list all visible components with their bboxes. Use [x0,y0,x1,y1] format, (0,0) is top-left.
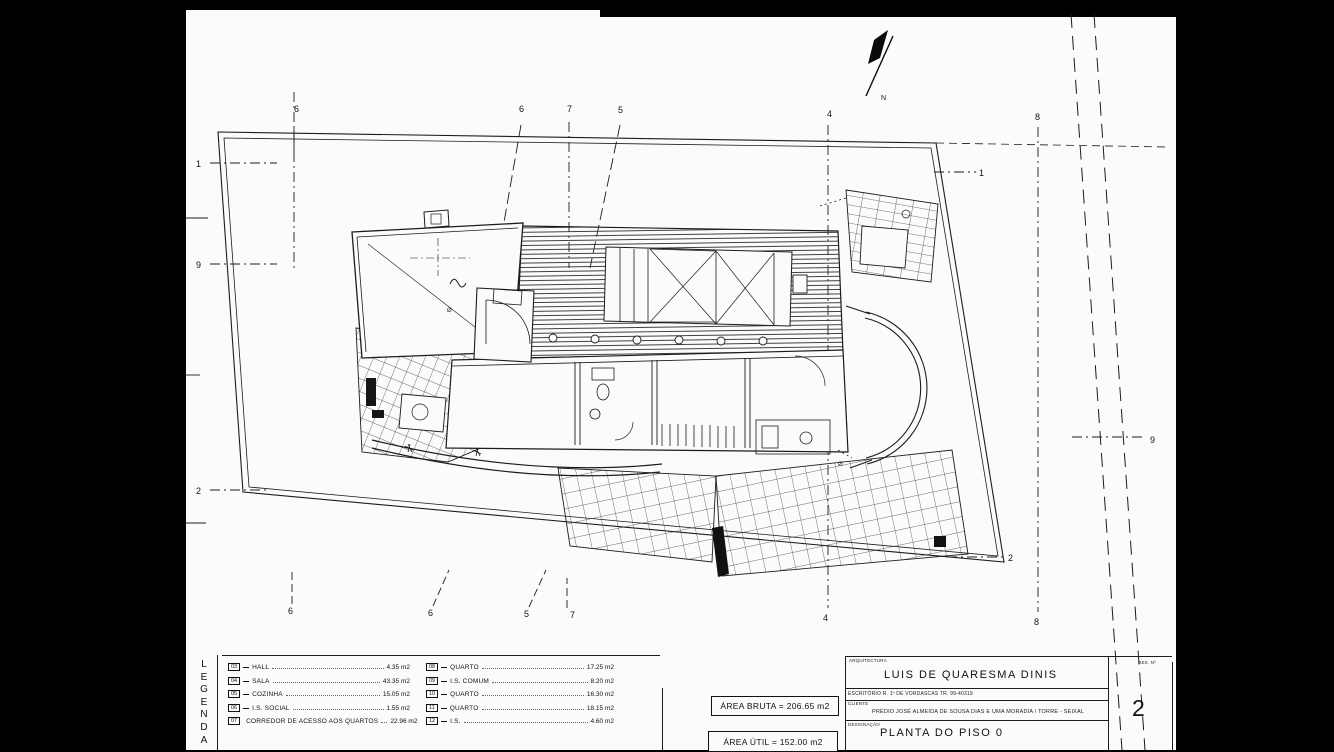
legend-item-number: 03 [228,663,240,671]
legend-item-number: 11 [426,704,438,712]
client-label: CLIENTE [848,701,868,706]
legend-item: 12 I.S. 4.60 m2 [426,718,614,725]
legend-item: 10 QUARTO 16.30 m2 [426,691,614,698]
legend-item-label: SALA [252,678,269,685]
legend-item: 09 I.S. COMUM 8.20 m2 [426,678,614,685]
title-block-line [845,720,1108,721]
grid-marker: 6 [519,104,524,114]
legend-item: 04 SALA 43.35 m2 [228,678,410,685]
legend-item-value: 4.60 m2 [591,718,615,725]
title-block-line [845,688,1108,689]
legend-letter: L [197,659,211,672]
legend-letter: A [197,735,211,748]
legend-leader [381,722,387,723]
legend-item-value: 18.15 m2 [587,705,614,712]
legend-dash [243,667,249,668]
legend-item-label: HALL [252,664,269,671]
grid-marker: 7 [567,104,572,114]
floor-plan-drawing: N 6 6 7 5 4 8 6 6 5 7 4 8 1 9 2 1 9 2 Ø … [0,0,1334,750]
legend-letter: G [197,684,211,697]
legend-dash [441,681,447,682]
curved-bay-wall [838,306,927,468]
legend-dash [243,681,249,682]
legend-item-value: 15.05 m2 [383,691,410,698]
legend-item-value: 22.96 m2 [390,718,417,725]
sheet-number-label: DES. Nº [1138,660,1156,665]
grid-marker: 9 [196,260,201,270]
grid-marker: 4 [823,613,828,623]
legend-item-value: 43.35 m2 [383,678,410,685]
legend-item-number: 12 [426,717,438,725]
legend-item-label: I.S. COMUM [450,678,489,685]
discipline-label: ARQUITECTURA [849,658,887,663]
area-bruta-box: ÁREA BRUTA = 206.65 m2 [711,696,839,716]
grid-marker: 4 [827,109,832,119]
grid-marker: 5 [524,609,529,619]
legend-right-column: 08 QUARTO 17.25 m2 09 I.S. COMUM 8.20 m2… [426,664,614,732]
legend-divider [217,655,218,750]
grid-marker: 1 [979,168,984,178]
designation-text: PLANTA DO PISO 0 [880,727,1003,739]
title-block-line [845,656,1172,657]
legend-letter: N [197,709,211,722]
legend-item: 05 COZINHA 15.05 m2 [228,691,410,698]
legend-item-label: I.S. SOCIAL [252,705,290,712]
legend-item-number: 09 [426,677,438,685]
legend-item-label: QUARTO [450,691,479,698]
legend-item-label: I.S. [450,718,461,725]
legend-letter: E [197,697,211,710]
legend-title: L E G E N D A [197,659,211,747]
legend-item-label: QUARTO [450,664,479,671]
tiled-terrace [558,450,968,577]
office-line: ESCRITÓRIO R. 1º DE VORDASCAS TR. 99-403… [848,691,973,697]
title-block-line [1108,656,1109,750]
legend-leader [492,682,588,683]
legend-item-label: QUARTO [450,705,479,712]
legend-dash [243,694,249,695]
grid-marker: 9 [1150,435,1155,445]
legend-item: 11 QUARTO 18.15 m2 [426,705,614,712]
grid-marker: 5 [618,105,623,115]
grid-marker: 8 [1035,112,1040,122]
north-label: N [881,95,886,102]
legend-item-number: 08 [426,663,438,671]
scanned-drawing-page: N 6 6 7 5 4 8 6 6 5 7 4 8 1 9 2 1 9 2 Ø … [0,0,1334,750]
legend-item-label: COZINHA [252,691,283,698]
title-block-line [845,656,846,750]
grid-marker: 8 [1034,617,1039,627]
legend-dash [243,708,249,709]
legend-letter: E [197,672,211,685]
legend-item-number: 10 [426,690,438,698]
grid-marker: 7 [570,610,575,620]
legend-item: 03 HALL 4.35 m2 [228,664,410,671]
legend-top-rule [222,655,660,656]
legend-leader [293,709,384,710]
sheet-number: 2 [1132,695,1145,722]
diameter-annotation: Ø [447,308,452,314]
legend-dash [441,694,447,695]
legend-item-number: 04 [228,677,240,685]
legend-item: 06 I.S. SOCIAL 1.55 m2 [228,705,410,712]
legend-leader [272,668,383,669]
legend-item-number: 06 [228,704,240,712]
entry-hall [474,288,534,362]
legend-item-value: 8.20 m2 [591,678,615,685]
legend-item: 07 CORREDOR DE ACESSO AOS QUARTOS 22.96 … [228,718,410,725]
legend-item-value: 17.25 m2 [587,664,614,671]
north-arrow-icon: N [866,30,893,102]
legend-leader [273,682,380,683]
architect-name: LUIS DE QUARESMA DINIS [884,669,1058,681]
area-divider [662,688,663,750]
area-util-text: ÁREA ÚTIL = 152.00 m2 [723,737,822,747]
legend-leader [286,695,380,696]
grid-marker: 2 [1008,553,1013,563]
legend-item: 08 QUARTO 17.25 m2 [426,664,614,671]
title-block-line [845,700,1108,701]
title-block-line [1172,662,1173,750]
street-edge-lines [1071,14,1145,750]
area-bruta-text: ÁREA BRUTA = 206.65 m2 [720,701,829,711]
grid-marker: 6 [288,606,293,616]
grid-marker: 2 [196,486,201,496]
legend-item-number: 05 [228,690,240,698]
legend-item-value: 1.55 m2 [387,705,411,712]
grid-marker: 6 [428,608,433,618]
diameter-annotation: Ø [838,462,843,468]
skylight-panels [604,247,792,326]
area-util-box: ÁREA ÚTIL = 152.00 m2 [708,731,838,752]
legend-left-column: 03 HALL 4.35 m2 04 SALA 43.35 m2 05 COZI… [228,664,410,732]
legend-dash [441,708,447,709]
legend-dash [441,721,447,722]
legend-leader [464,722,588,723]
legend-letter: D [197,722,211,735]
legend-item-value: 4.35 m2 [387,664,411,671]
legend-leader [482,695,584,696]
legend-leader [482,709,584,710]
legend-leader [482,668,584,669]
grid-marker: 1 [196,159,201,169]
client-line: PRÉDIO JOSÉ ALMEIDA DE SOUSA DIAS E UMA … [872,709,1084,715]
legend-item-number: 07 [228,717,240,725]
legend-item-value: 16.30 m2 [587,691,614,698]
designation-label: DESIGNAÇÃO [848,722,880,727]
grid-marker: 6 [294,104,299,114]
legend-item-label: CORREDOR DE ACESSO AOS QUARTOS [246,718,378,725]
legend-dash [441,667,447,668]
